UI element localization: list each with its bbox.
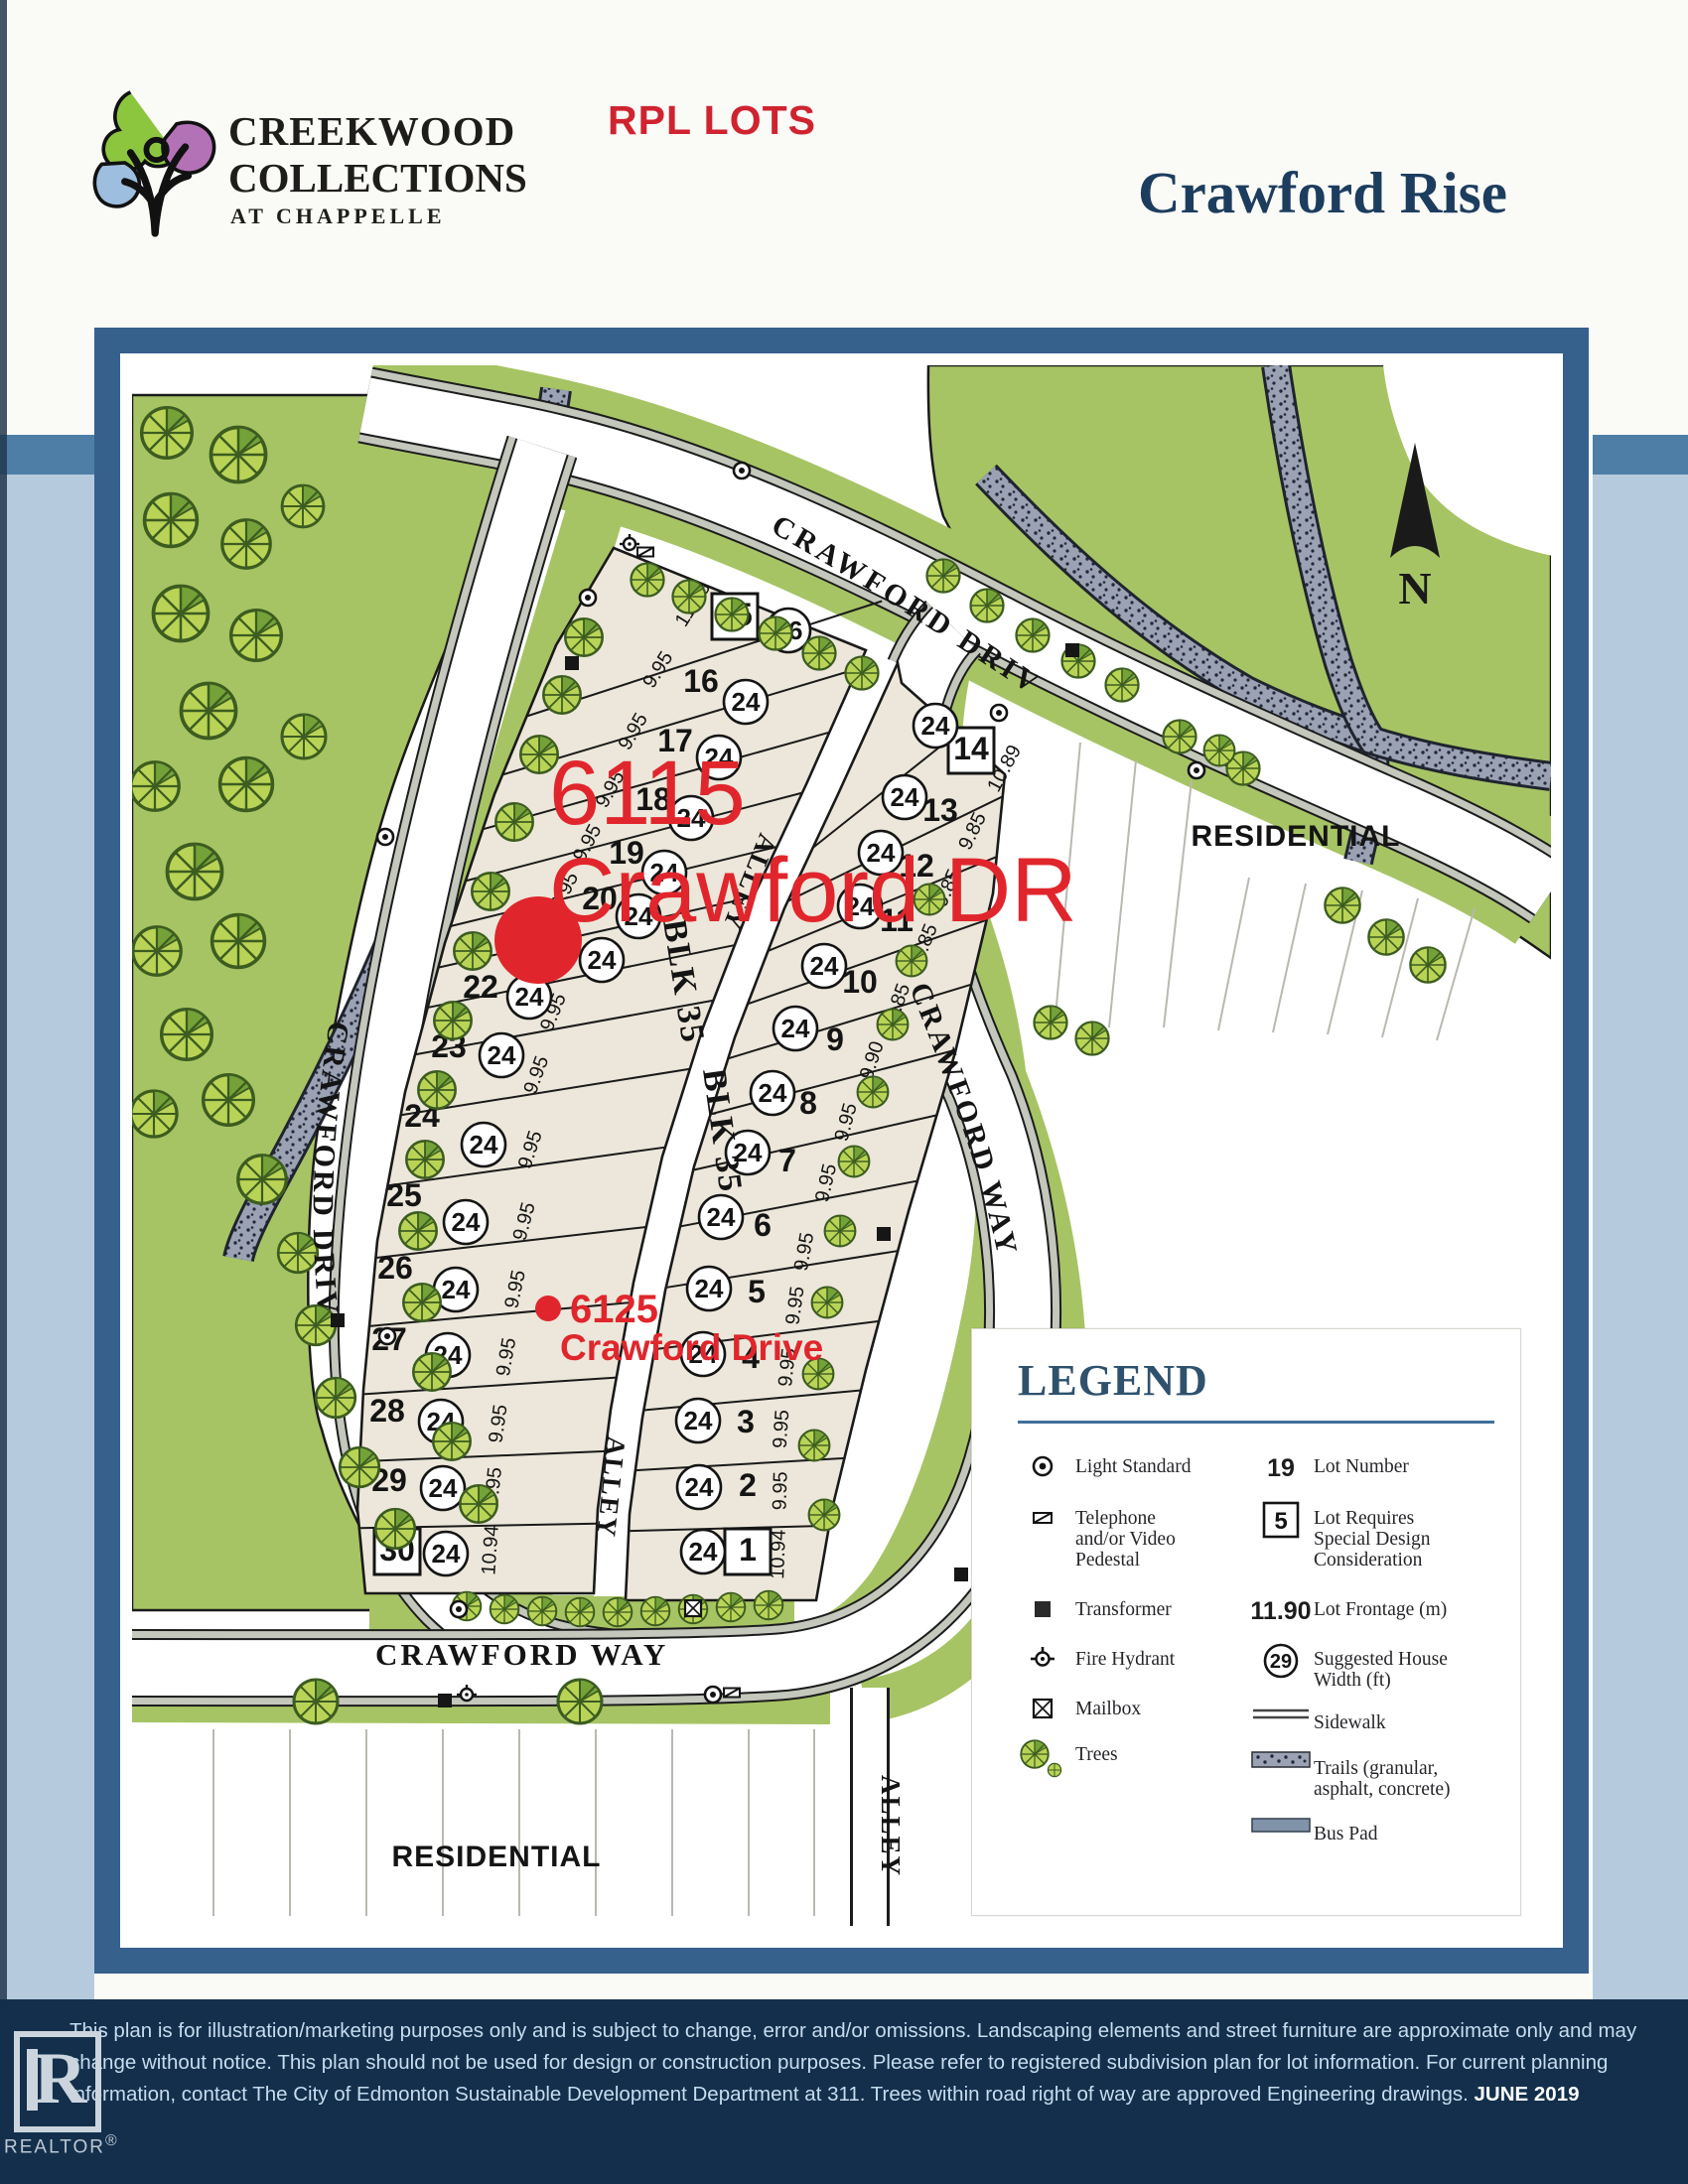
mailbox-icon <box>1010 1689 1075 1728</box>
house-width-value: 24 <box>689 1537 718 1567</box>
lot-number: 8 <box>799 1085 817 1121</box>
legend-symbol: 5 <box>1248 1498 1314 1542</box>
fire-hydrant-icon <box>1010 1639 1075 1679</box>
legend-symbol: 11.90 <box>1248 1589 1314 1626</box>
annotation-6125-number: 6125 <box>570 1288 658 1331</box>
tree-icon <box>211 428 266 482</box>
svg-text:29: 29 <box>1270 1651 1292 1673</box>
house-width-value: 24 <box>588 945 617 975</box>
light-standard-icon <box>451 1601 467 1617</box>
lot-number: 25 <box>386 1177 422 1213</box>
tree-icon <box>460 1485 496 1522</box>
lot-number: 26 <box>377 1250 413 1286</box>
light-standard-icon <box>1010 1446 1075 1486</box>
tree-icon <box>927 560 960 593</box>
legend-item-label: Lot Number <box>1314 1446 1409 1477</box>
legend-item-label: Sidewalk <box>1314 1703 1386 1733</box>
legend-item: Trees <box>1010 1734 1220 1796</box>
legend-item-label: Lot Requires Special Design Consideratio… <box>1314 1498 1431 1570</box>
lot-number: 9 <box>826 1022 844 1057</box>
tree-icon <box>528 1597 557 1626</box>
lot-frontage: 9.95 <box>769 1471 791 1511</box>
lot-number: 16 <box>683 663 719 699</box>
tree-icon <box>971 590 1004 622</box>
transformer-icon <box>1010 1589 1075 1629</box>
tree-icon <box>803 637 836 670</box>
legend-item: 29Suggested House Width (ft) <box>1248 1639 1506 1703</box>
lot-frontage: 10.94 <box>478 1525 502 1575</box>
tree-icon <box>413 1353 450 1390</box>
legend-panel: LEGEND Light StandardTelephone and/or Vi… <box>971 1328 1521 1916</box>
legend-item: 19Lot Number <box>1248 1446 1506 1498</box>
tree-icon <box>294 1680 338 1723</box>
legend-rule <box>1018 1421 1494 1424</box>
lot-number: 10 <box>842 964 878 1000</box>
tree-icon <box>238 1156 286 1203</box>
tree-icon <box>1164 721 1196 753</box>
telephone-pedestal-icon <box>1010 1498 1075 1538</box>
tree-icon <box>133 927 181 975</box>
legend-column-annotations: 19Lot Number5Lot Requires Special Design… <box>1248 1446 1506 1861</box>
tree-icon <box>604 1598 633 1627</box>
residential-label-right: RESIDENTIAL <box>1191 820 1400 853</box>
transformer-icon <box>1065 643 1079 657</box>
annotation-6115-street: Crawford DR <box>549 840 1077 941</box>
house-width-value: 24 <box>515 982 544 1012</box>
house-width-value: 24 <box>470 1130 498 1160</box>
legend-symbol: 29 <box>1248 1639 1314 1683</box>
tree-icon <box>454 932 491 969</box>
lot-frontage: 10.94 <box>767 1529 790 1579</box>
street-label-crawford-way-bottom: CRAWFORD WAY <box>375 1637 668 1672</box>
house-width-value: 24 <box>891 782 919 812</box>
lot-number: 28 <box>369 1393 405 1429</box>
house-width-value: 24 <box>684 1406 713 1435</box>
tree-icon <box>434 1002 471 1038</box>
tree-icon <box>825 1216 856 1247</box>
sidewalk-icon <box>1248 1703 1314 1726</box>
page: CREEKWOOD COLLECTIONS AT CHAPPELLE RPL L… <box>0 0 1688 2184</box>
house-width-value: 24 <box>781 1014 810 1043</box>
legend-item-label: Fire Hydrant <box>1075 1639 1175 1670</box>
house-width-value: 24 <box>732 687 761 717</box>
tree-icon <box>543 676 580 713</box>
tree-icon <box>222 520 270 568</box>
tree-icon <box>1106 669 1139 702</box>
residential-label-bottom: RESIDENTIAL <box>391 1841 601 1873</box>
tree-icon <box>375 1509 415 1549</box>
lot-number: 7 <box>778 1143 796 1178</box>
realtor-logo-icon: R <box>14 2031 101 2132</box>
tree-icon <box>1017 619 1050 652</box>
legend-item-label: Transformer <box>1075 1589 1172 1620</box>
light-standard-icon <box>1189 762 1204 778</box>
tree-icon <box>399 1212 436 1249</box>
tree-icon <box>566 1598 595 1627</box>
tree-icon <box>340 1447 379 1487</box>
tree-icon <box>858 1077 889 1108</box>
tree-icon <box>565 618 602 655</box>
tree-icon <box>799 1431 830 1461</box>
tree-icon <box>182 684 236 739</box>
legend-item: Bus Pad <box>1248 1814 1506 1861</box>
light-standard-icon <box>734 463 750 478</box>
north-label: N <box>1398 563 1431 614</box>
disclaimer-text: This plan is for illustration/marketing … <box>70 2015 1638 2111</box>
transformer-icon <box>438 1694 452 1707</box>
legend-item-label: Bus Pad <box>1314 1814 1377 1844</box>
tree-icon <box>168 845 222 899</box>
tree-icon <box>231 611 282 661</box>
house-width-value: 24 <box>685 1472 714 1502</box>
disclaimer-body: This plan is for illustration/marketing … <box>70 2019 1636 2106</box>
light-standard-icon <box>705 1687 721 1703</box>
tree-icon <box>716 599 749 631</box>
legend-item-label: Light Standard <box>1075 1446 1191 1477</box>
tree-icon <box>558 1680 602 1723</box>
tree-icon <box>1076 1023 1109 1055</box>
tree-icon <box>220 758 273 811</box>
tree-icon <box>154 587 209 641</box>
realtor-wordmark: REALTOR® <box>4 2132 119 2158</box>
tree-icon <box>1035 1007 1067 1039</box>
tree-icon <box>131 1091 177 1137</box>
annotation-6115-number: 6115 <box>549 743 746 844</box>
tree-icon <box>472 873 508 909</box>
house-width-value: 24 <box>488 1040 516 1070</box>
bus-pad-icon <box>1248 1814 1314 1838</box>
trail-marker-icon <box>377 829 393 845</box>
house-width-value: 24 <box>695 1274 724 1303</box>
legend-item: Transformer <box>1010 1589 1220 1639</box>
legend-title: LEGEND <box>1018 1355 1520 1406</box>
lot-number: 13 <box>922 792 958 828</box>
transformer-icon <box>877 1227 891 1241</box>
legend-item-label: Trees <box>1075 1734 1118 1765</box>
house-width-value: 24 <box>442 1275 471 1304</box>
house-width-value: 24 <box>707 1202 736 1232</box>
legend-item: Trails (granular, asphalt, concrete) <box>1248 1748 1506 1814</box>
tree-icon <box>403 1284 440 1320</box>
tree-icon <box>1204 736 1235 766</box>
lot-number: 3 <box>737 1404 755 1439</box>
tree-icon <box>495 803 532 840</box>
tree-icon <box>406 1141 443 1177</box>
legend-item: Light Standard <box>1010 1446 1220 1498</box>
tree-icon <box>846 657 879 690</box>
trails-icon <box>1248 1748 1314 1772</box>
tree-icon <box>316 1378 355 1418</box>
house-width-value: 24 <box>432 1539 461 1569</box>
plan-date: JUNE 2019 <box>1475 2083 1580 2106</box>
legend-item: Fire Hydrant <box>1010 1639 1220 1689</box>
house-width-value: 24 <box>810 951 839 981</box>
tree-icon <box>755 1591 783 1620</box>
annotation-6125-street: Crawford Drive <box>560 1327 823 1368</box>
tree-icon <box>673 581 706 614</box>
lot-number: 1 <box>739 1532 757 1568</box>
legend-column-symbols: Light StandardTelephone and/or Video Ped… <box>1010 1446 1220 1796</box>
lot-number: 22 <box>463 969 498 1005</box>
lot-frontage: 9.95 <box>770 1409 794 1448</box>
tree-icon <box>131 762 179 810</box>
transformer-icon <box>565 656 579 670</box>
tree-icon <box>145 494 198 547</box>
tree-icon <box>717 1593 746 1622</box>
lot-number: 14 <box>953 731 989 766</box>
telephone-pedestal-icon <box>637 548 653 557</box>
lot-number: 6 <box>754 1207 772 1243</box>
tree-icon <box>809 1500 840 1531</box>
legend-item-label: Suggested House Width (ft) <box>1314 1639 1448 1691</box>
tree-icon <box>1325 887 1359 922</box>
tree-icon <box>282 485 324 527</box>
telephone-pedestal-icon <box>724 1689 740 1698</box>
trees-icon <box>1010 1734 1075 1782</box>
house-width-value: 24 <box>921 711 950 741</box>
light-standard-icon <box>580 590 596 606</box>
legend-item-label: Mailbox <box>1075 1689 1141 1719</box>
house-width-value: 24 <box>429 1473 458 1503</box>
legend-item-label: Telephone and/or Video Pedestal <box>1075 1498 1176 1570</box>
tree-icon <box>491 1595 519 1624</box>
tree-icon <box>162 1010 212 1060</box>
tree-icon <box>418 1071 455 1108</box>
house-width-value: 24 <box>759 1078 787 1108</box>
tree-icon <box>142 408 193 459</box>
legend-item: Mailbox <box>1010 1689 1220 1734</box>
tree-icon <box>212 915 265 968</box>
legend-item: 11.90Lot Frontage (m) <box>1248 1589 1506 1639</box>
alley-label-south: ALLEY <box>876 1775 906 1877</box>
legend-item: Telephone and/or Video Pedestal <box>1010 1498 1220 1589</box>
light-standard-icon <box>379 1328 395 1344</box>
light-standard-icon <box>991 705 1007 721</box>
tree-icon <box>632 564 664 597</box>
house-width-value: 24 <box>452 1207 481 1237</box>
mailbox-icon <box>685 1600 701 1616</box>
lot-6125-marker-dot <box>535 1296 561 1321</box>
transformer-icon <box>954 1568 968 1581</box>
tree-icon <box>282 715 326 758</box>
tree-icon <box>812 1288 843 1318</box>
lot-number: 5 <box>748 1274 766 1309</box>
tree-icon <box>1368 919 1403 954</box>
lot-number: 2 <box>739 1467 757 1503</box>
legend-item: 5Lot Requires Special Design Considerati… <box>1248 1498 1506 1589</box>
tree-icon <box>760 617 792 650</box>
tree-icon <box>897 946 927 977</box>
tree-icon <box>433 1423 470 1459</box>
tree-icon <box>1410 947 1445 982</box>
legend-symbol: 19 <box>1248 1446 1314 1483</box>
legend-item-label: Lot Frontage (m) <box>1314 1589 1447 1620</box>
legend-item: Sidewalk <box>1248 1703 1506 1748</box>
tree-icon <box>641 1597 670 1626</box>
tree-icon <box>839 1147 870 1177</box>
tree-icon <box>204 1075 254 1126</box>
legend-item-label: Trails (granular, asphalt, concrete) <box>1314 1748 1451 1800</box>
svg-text:5: 5 <box>1274 1508 1287 1535</box>
tree-icon <box>878 1010 909 1040</box>
